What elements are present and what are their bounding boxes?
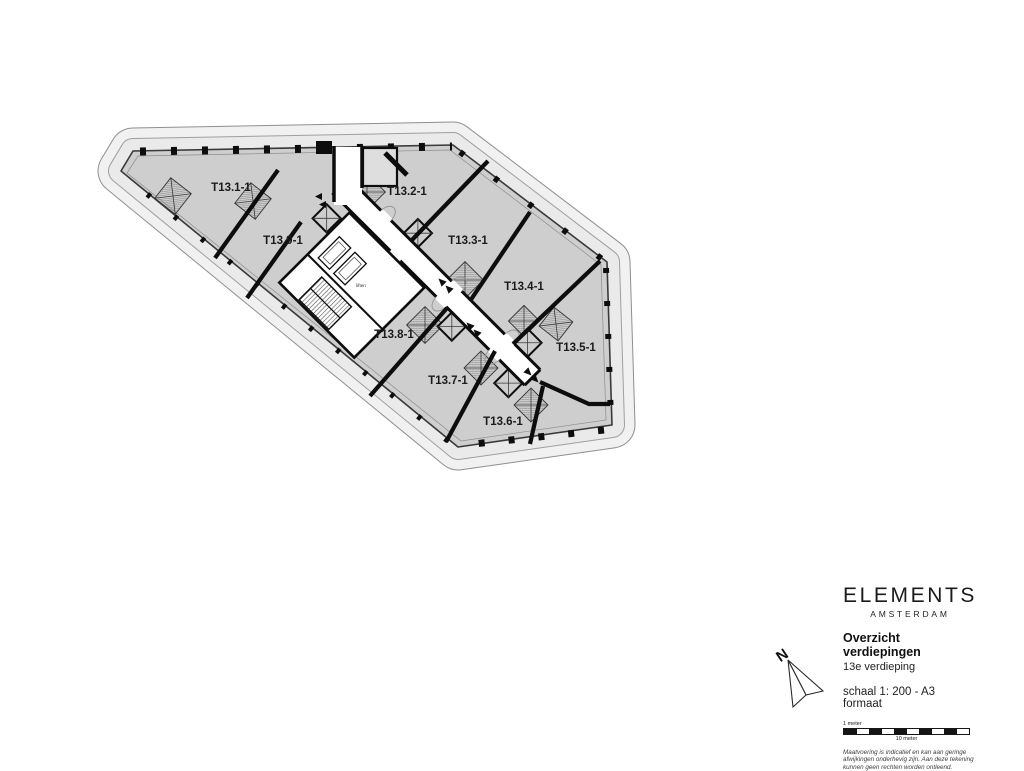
north-arrow: N	[762, 634, 834, 714]
unit-label-t13-4-1: T13.4-1	[504, 281, 544, 293]
page: { "plan": { "units": [ {"id": "T13.1-1"}…	[0, 0, 1024, 737]
scale-bar-top-label: 1 meter	[843, 721, 970, 727]
brand-subtitle: AMSTERDAM	[843, 609, 977, 619]
unit-label-t13-8-1: T13.8-1	[374, 329, 414, 341]
unit-label-t13-5-1: T13.5-1	[556, 342, 596, 354]
unit-label-t13-9-1: T13.9-1	[263, 235, 303, 247]
disclaimer-line: afwijkingen onderhevig zijn. Aan deze te…	[843, 756, 977, 763]
scale-bar-segments	[843, 728, 970, 735]
entrance-room	[363, 148, 397, 186]
brand-logo: ELEMENTS	[843, 584, 977, 608]
unit-label-t13-7-1: T13.7-1	[428, 375, 468, 387]
unit-label-t13-6-1: T13.6-1	[483, 416, 523, 428]
drawing-title: Overzicht verdiepingen	[843, 631, 977, 659]
unit-label-t13-3-1: T13.3-1	[448, 235, 488, 247]
unit-label-t13-2-1: T13.2-1	[387, 186, 427, 198]
scale-bar: 1 meter 10 meter	[843, 721, 970, 742]
scale-text: schaal 1: 200 - A3 formaat	[843, 686, 977, 710]
disclaimer-text: Maatvoering is indicatief en kan aan ger…	[843, 749, 977, 771]
disclaimer-line: Maatvoering is indicatief en kan aan ger…	[843, 749, 977, 756]
unit-label-t13-1-1: T13.1-1	[211, 182, 251, 194]
floor-subtitle: 13e verdieping	[843, 661, 977, 673]
lift-label: liften	[356, 283, 366, 288]
title-block: ELEMENTS AMSTERDAM Overzicht verdiepinge…	[843, 584, 977, 771]
disclaimer-line: kunnen geen rechten worden ontleend.	[843, 764, 977, 771]
